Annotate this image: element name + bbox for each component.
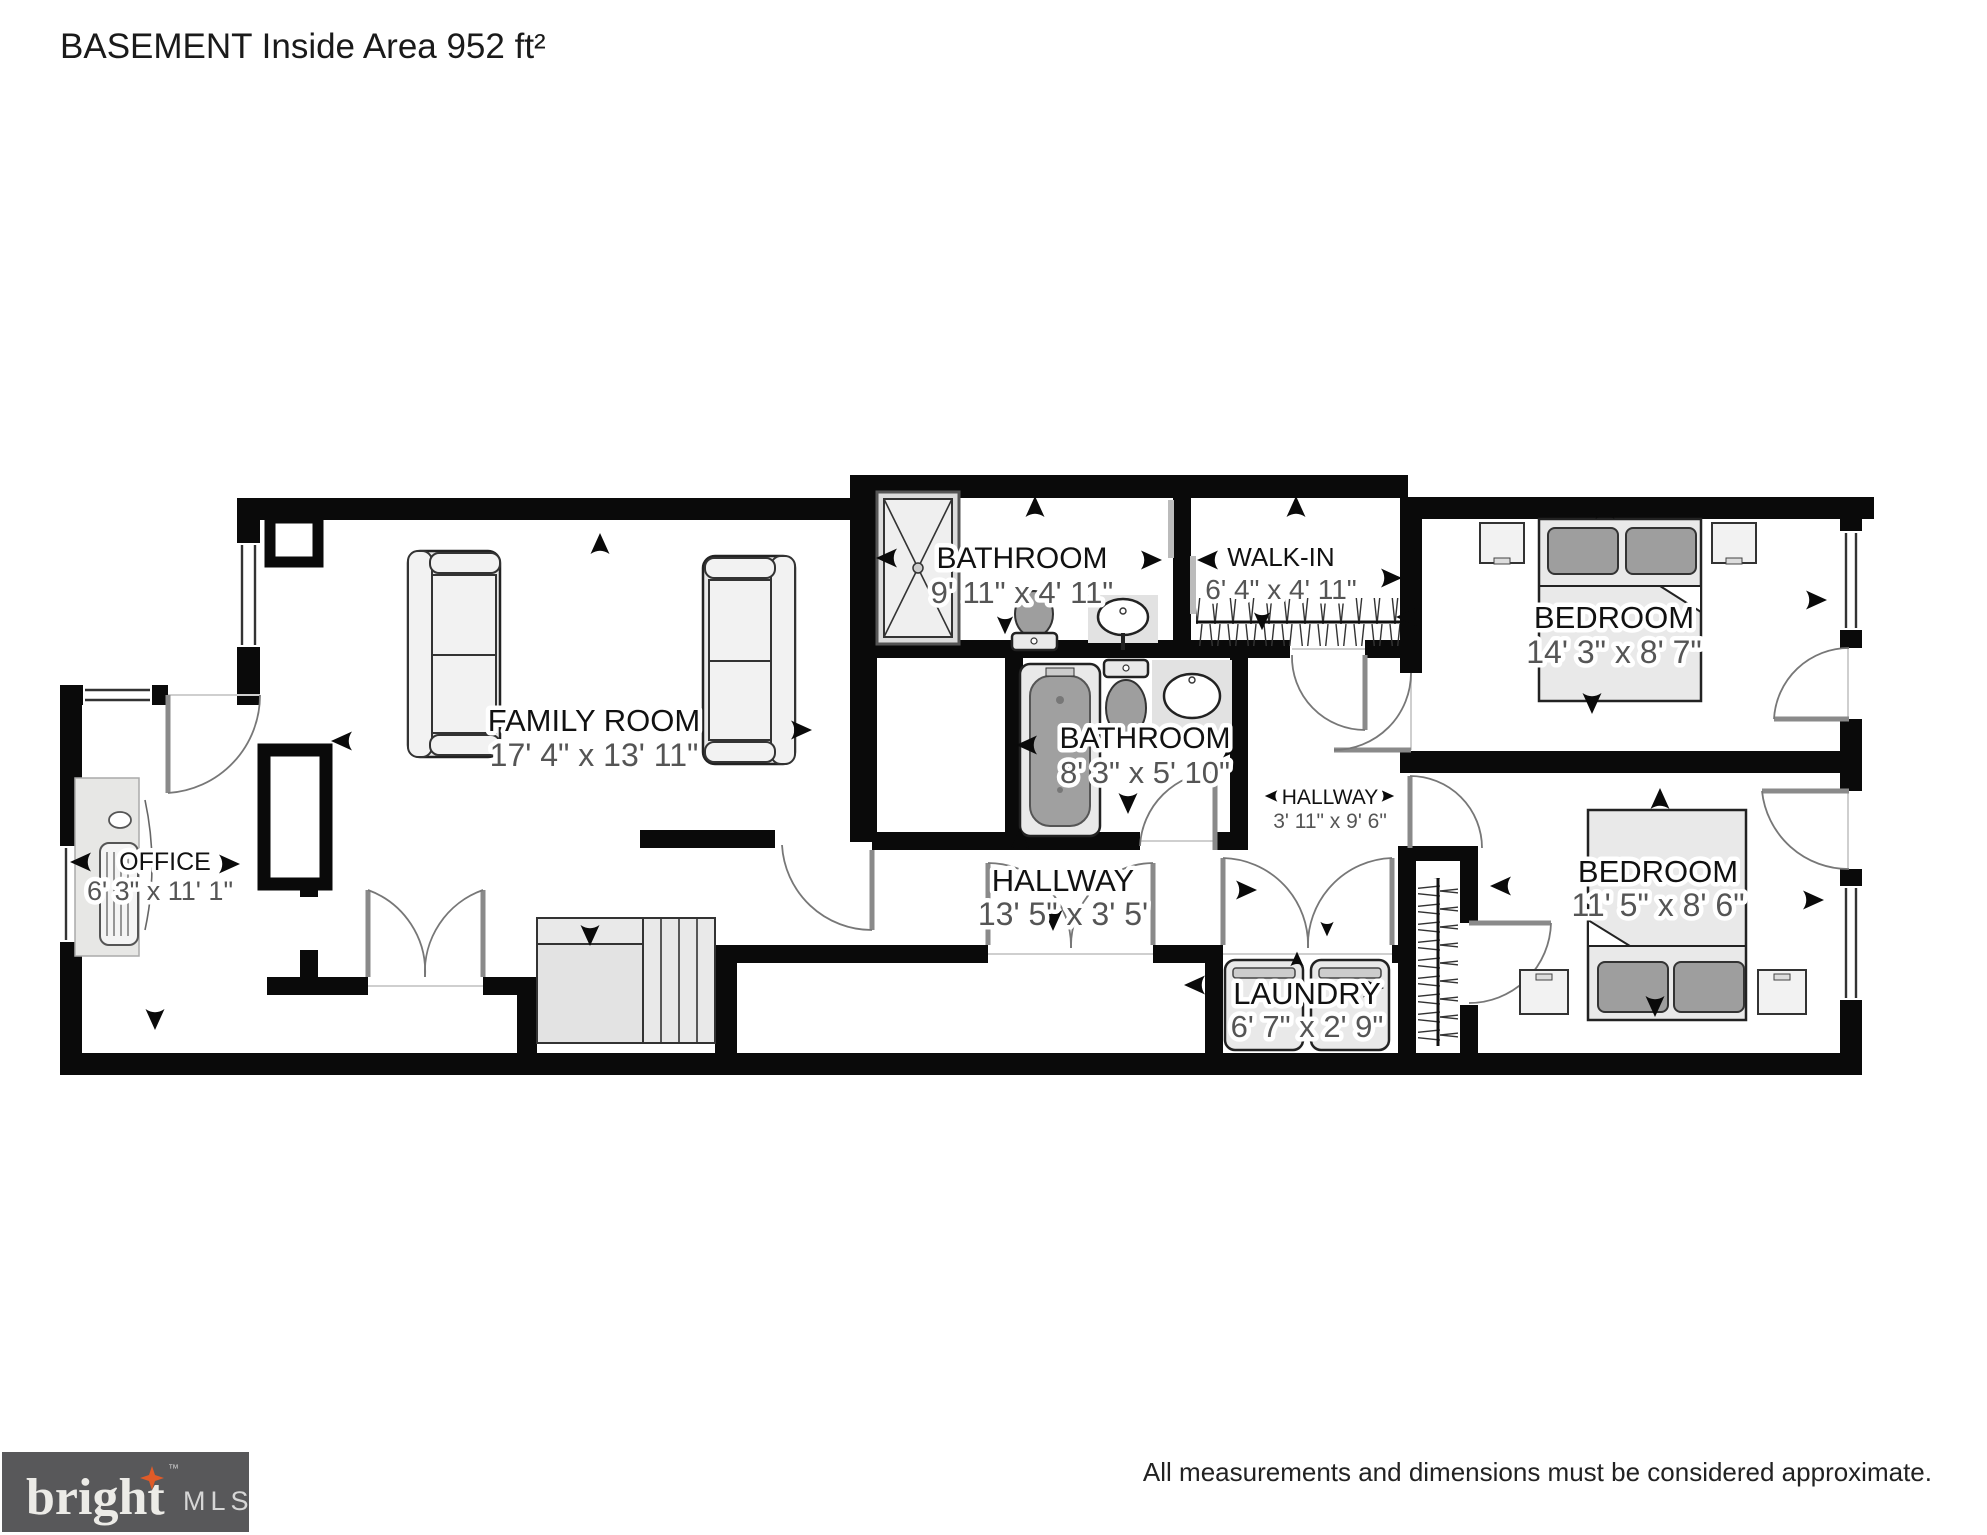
logo-mls-text: MLS	[183, 1486, 254, 1516]
room-label-walk-in: WALK-IN 6' 4" x 4' 11"	[1205, 542, 1356, 605]
svg-text:6' 4" x 4' 11": 6' 4" x 4' 11"	[1205, 574, 1356, 605]
room-label-bedroom-bottom: BEDROOM 11' 5" x 8' 6"	[1571, 854, 1744, 923]
room-label-hallway-main: HALLWAY 13' 5" x 3' 5'	[978, 863, 1148, 932]
sofa-left	[408, 551, 500, 757]
footer: bright ™ MLS All measurements and dimens…	[2, 1452, 1932, 1532]
brightmls-logo: bright ™ MLS	[2, 1452, 254, 1532]
svg-text:17' 4" x 13' 11": 17' 4" x 13' 11"	[490, 737, 699, 773]
disclaimer-text: All measurements and dimensions must be …	[1143, 1457, 1932, 1487]
svg-text:BEDROOM: BEDROOM	[1578, 854, 1738, 889]
closet-rack	[1418, 878, 1458, 1046]
svg-text:11' 5" x 8' 6": 11' 5" x 8' 6"	[1571, 887, 1744, 923]
room-label-bathroom-main: BATHROOM 8' 3" x 5' 10"	[1059, 722, 1230, 790]
room-label-hallway-small: HALLWAY 3' 11" x 9' 6"	[1273, 786, 1387, 833]
page-title: BASEMENT Inside Area 952 ft²	[60, 27, 546, 66]
svg-text:HALLWAY: HALLWAY	[1282, 786, 1378, 809]
floorplan-canvas: BASEMENT Inside Area 952 ft²	[0, 0, 1987, 1535]
room-label-family-room: FAMILY ROOM 17' 4" x 13' 11"	[488, 703, 700, 773]
svg-text:6' 3" x 11' 1": 6' 3" x 11' 1"	[87, 876, 233, 906]
svg-text:FAMILY ROOM: FAMILY ROOM	[488, 703, 700, 738]
svg-text:6' 7" x 2' 9": 6' 7" x 2' 9"	[1231, 1009, 1384, 1044]
sofa-right	[703, 556, 795, 764]
window-family-left	[237, 543, 260, 647]
svg-text:13' 5" x 3' 5': 13' 5" x 3' 5'	[978, 896, 1148, 932]
svg-text:14' 3" x 8' 7": 14' 3" x 8' 7"	[1526, 634, 1701, 670]
window-bedroom1-right	[1840, 531, 1862, 630]
svg-text:OFFICE: OFFICE	[119, 848, 211, 876]
room-label-laundry: LAUNDRY 6' 7" x 2' 9"	[1231, 976, 1384, 1044]
chimney-boxes	[264, 518, 326, 884]
svg-text:BATHROOM: BATHROOM	[936, 542, 1107, 575]
floorplan-page: BASEMENT Inside Area 952 ft²	[0, 0, 1987, 1535]
svg-text:LAUNDRY: LAUNDRY	[1233, 976, 1381, 1011]
logo-tm-text: ™	[168, 1463, 179, 1475]
svg-text:BATHROOM: BATHROOM	[1059, 722, 1230, 755]
svg-text:9' 11" x 4' 11": 9' 11" x 4' 11"	[931, 575, 1114, 610]
room-label-bathroom-top: BATHROOM 9' 11" x 4' 11"	[931, 542, 1114, 610]
window-bedroom2-right	[1840, 886, 1862, 1000]
window-office-top	[83, 685, 152, 705]
svg-text:3' 11" x 9' 6": 3' 11" x 9' 6"	[1273, 810, 1387, 833]
svg-text:HALLWAY: HALLWAY	[992, 863, 1134, 898]
svg-text:BEDROOM: BEDROOM	[1534, 600, 1694, 635]
stairs	[537, 918, 715, 1043]
walkin-rack	[1196, 598, 1400, 646]
room-label-bedroom-top: BEDROOM 14' 3" x 8' 7"	[1526, 600, 1701, 670]
svg-text:WALK-IN: WALK-IN	[1227, 542, 1334, 572]
svg-text:8' 3" x 5' 10": 8' 3" x 5' 10"	[1060, 755, 1230, 790]
